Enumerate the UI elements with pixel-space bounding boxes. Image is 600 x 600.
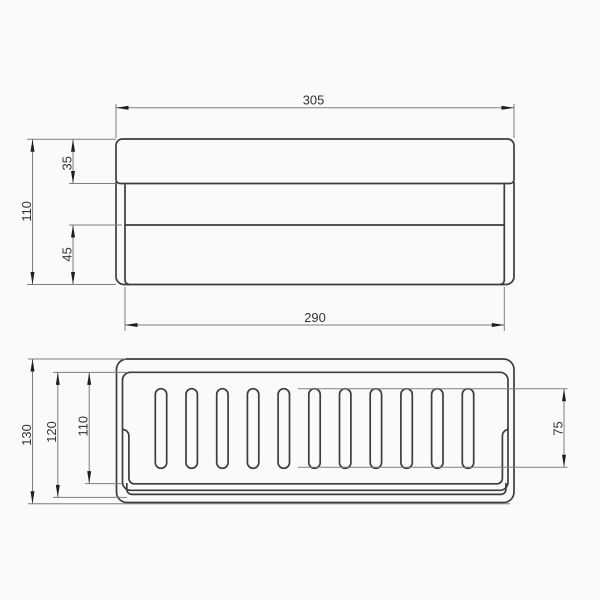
svg-text:305: 305 — [303, 92, 325, 107]
svg-text:45: 45 — [59, 247, 74, 261]
svg-text:130: 130 — [19, 424, 34, 446]
svg-text:290: 290 — [304, 310, 326, 325]
svg-text:110: 110 — [19, 201, 34, 222]
svg-text:110: 110 — [76, 416, 91, 437]
svg-text:35: 35 — [59, 156, 74, 170]
svg-text:120: 120 — [44, 421, 59, 443]
svg-text:75: 75 — [550, 421, 565, 435]
